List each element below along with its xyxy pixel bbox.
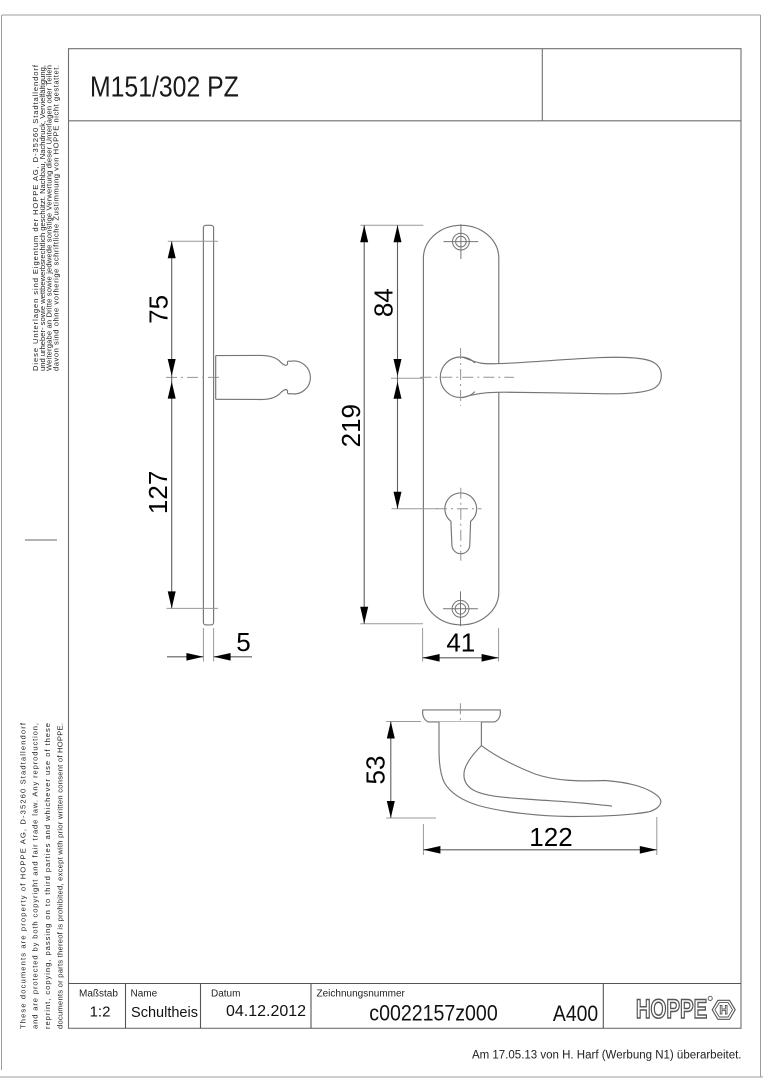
svg-text:Name: Name bbox=[131, 989, 158, 1000]
svg-text:04.12.2012: 04.12.2012 bbox=[226, 1003, 306, 1020]
svg-text:M151/302 PZ: M151/302 PZ bbox=[90, 71, 239, 103]
svg-text:122: 122 bbox=[529, 822, 572, 852]
svg-text:Am 17.05.13 von H. Harf (Werbu: Am 17.05.13 von H. Harf (Werbung N1) übe… bbox=[472, 1050, 742, 1062]
svg-text:Datum: Datum bbox=[211, 989, 240, 1000]
svg-text:Zeichnungsnummer: Zeichnungsnummer bbox=[317, 989, 406, 1000]
svg-text:5: 5 bbox=[236, 627, 250, 657]
svg-text:Maßstab: Maßstab bbox=[79, 989, 118, 1000]
svg-text:Schultheis: Schultheis bbox=[131, 1005, 198, 1021]
svg-text:reprint, copying, passing on t: reprint, copying, passing on to third pa… bbox=[43, 723, 52, 1029]
svg-text:84: 84 bbox=[369, 288, 399, 317]
svg-text:documents or parts thereof is: documents or parts thereof is prohibited… bbox=[55, 723, 64, 1029]
svg-text:75: 75 bbox=[144, 295, 174, 324]
svg-text:HOPPE: HOPPE bbox=[636, 996, 707, 1025]
svg-text:c0022157z000: c0022157z000 bbox=[369, 1001, 497, 1025]
svg-text:These documents are property o: These documents are property of HOPPE AG… bbox=[18, 722, 27, 1029]
svg-text:1:2: 1:2 bbox=[90, 1004, 111, 1021]
svg-text:41: 41 bbox=[446, 628, 475, 658]
svg-text:127: 127 bbox=[143, 471, 173, 514]
svg-text:davon sind ohne vorherige schr: davon sind ohne vorherige schriftliche Z… bbox=[51, 65, 60, 371]
svg-text:53: 53 bbox=[361, 756, 391, 785]
svg-text:A400: A400 bbox=[553, 1002, 598, 1026]
svg-text:and are protected by both copy: and are protected by both copyright and … bbox=[31, 723, 40, 1029]
svg-text:H: H bbox=[720, 1005, 728, 1017]
svg-text:219: 219 bbox=[336, 404, 366, 447]
